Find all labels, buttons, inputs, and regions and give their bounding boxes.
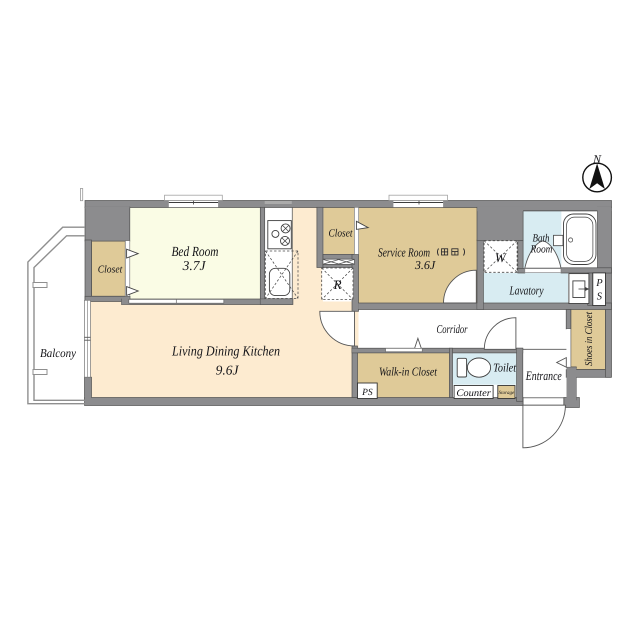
svg-text:Room: Room (530, 243, 553, 255)
svg-text:Shoes in Closet: Shoes in Closet (584, 311, 595, 366)
svg-text:9.6J: 9.6J (216, 363, 240, 378)
svg-text:Entrance: Entrance (525, 368, 562, 383)
svg-text:Closet: Closet (329, 228, 354, 240)
svg-text:Lavatory: Lavatory (509, 284, 544, 298)
svg-text:P: P (595, 278, 603, 289)
svg-text:N: N (592, 152, 602, 166)
svg-text:3.6J: 3.6J (414, 258, 436, 272)
svg-text:Counter: Counter (456, 388, 491, 399)
svg-text:Storage: Storage (499, 390, 515, 396)
svg-text:PS: PS (361, 388, 373, 398)
svg-text:Toilet: Toilet (493, 361, 517, 375)
svg-text:3.7J: 3.7J (182, 258, 207, 273)
svg-text:W: W (495, 250, 507, 265)
svg-text:Corridor: Corridor (437, 322, 468, 336)
svg-text:Closet: Closet (98, 264, 123, 275)
svg-text:Balcony: Balcony (40, 346, 77, 360)
svg-text:Walk-in Closet: Walk-in Closet (379, 365, 438, 379)
svg-text:S: S (597, 291, 603, 302)
svg-text:Living Dining Kitchen: Living Dining Kitchen (171, 345, 280, 360)
svg-text:R: R (333, 277, 342, 292)
